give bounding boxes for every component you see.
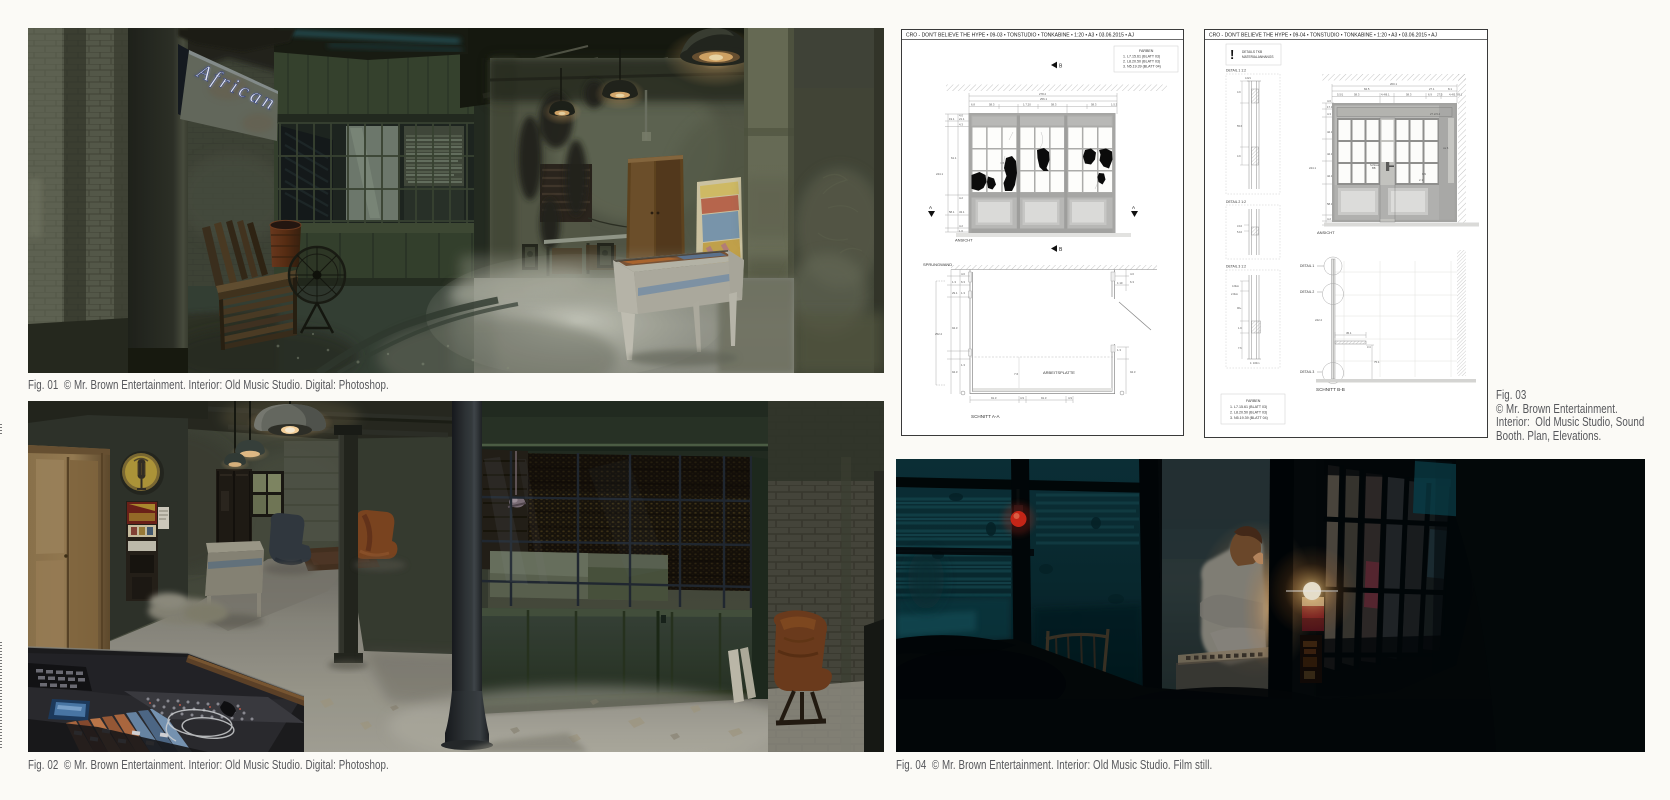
svg-text:ANSICHT: ANSICHT [955,238,973,243]
svg-text:CRO - DON'T BELIEVE THE HYPE •: CRO - DON'T BELIEVE THE HYPE • 09-03 • T… [906,33,1134,39]
svg-text:DETAIL 3: DETAIL 3 [1300,370,1314,374]
svg-text:4.9: 4.9 [1237,90,1241,94]
svg-text:DETAIL 2 1:2: DETAIL 2 1:2 [1226,200,1246,204]
svg-text:SCHNITT B-B: SCHNITT B-B [1316,387,1345,392]
svg-text:200.1: 200.1 [1390,82,1397,86]
svg-text:19.1: 19.1 [949,117,955,121]
svg-text:A: A [1132,205,1135,210]
svg-text:DETAIL 3 1:2: DETAIL 3 1:2 [1226,265,1246,269]
svg-text:6.9: 6.9 [1428,93,1432,97]
svg-text:3.10: 3.10 [1237,224,1243,228]
svg-text:4.0: 4.0 [961,272,965,276]
svg-text:4.3: 4.3 [959,123,963,127]
svg-text:!: ! [1230,47,1234,62]
svg-text:6.8: 6.8 [971,103,975,107]
svg-text:55.6: 55.6 [1237,124,1243,128]
svg-text:4.9/1: 4.9/1 [1245,76,1251,80]
svg-text:FARBEN: FARBEN [1139,49,1154,53]
svg-text:1.6: 1.6 [959,229,963,233]
svg-text:BB: BB [1372,166,1376,170]
svg-text:244.1: 244.1 [1309,166,1316,170]
svg-text:94.3: 94.3 [952,370,958,374]
svg-text:244.1: 244.1 [936,172,943,176]
svg-text:6.3: 6.3 [961,280,965,284]
svg-text:SPRUNGWAND: SPRUNGWAND [923,262,952,267]
svg-text:2.0km: 2.0km [1231,292,1238,296]
svg-text:FARBEN: FARBEN [1246,399,1261,403]
svg-text:94.3: 94.3 [952,326,958,330]
svg-text:45.1: 45.1 [1346,331,1352,335]
svg-text:252.2: 252.2 [935,332,942,336]
svg-text:27.5: 27.5 [1437,93,1443,97]
svg-text:278.2: 278.2 [1039,92,1046,96]
svg-text:1:5.3: 1:5.3 [1111,103,1118,107]
svg-text:1.3: 1.3 [1117,348,1121,352]
svg-text:4.4/5.7/8.1: 4.4/5.7/8.1 [1449,93,1463,97]
svg-text:4.9: 4.9 [1068,396,1072,400]
svg-text:4.2: 4.2 [959,196,963,200]
svg-text:2.1: 2.1 [1419,178,1423,182]
svg-text:1. L7.15.61 (BLATT 03): 1. L7.15.61 (BLATT 03) [1123,55,1160,59]
svg-text:256.1: 256.1 [1040,97,1047,101]
svg-text:75.1: 75.1 [1374,360,1380,364]
svg-text:58.1: 58.1 [949,210,955,214]
svg-text:1:10: 1:10 [1117,281,1123,285]
svg-text:61.1: 61.1 [951,156,957,160]
svg-text:7.6: 7.6 [1014,372,1019,376]
svg-text:27.2/3.4: 27.2/3.4 [1430,112,1441,116]
svg-text:1. L7.15.61 (BLATT 03): 1. L7.15.61 (BLATT 03) [1230,405,1267,409]
svg-text:1.3: 1.3 [961,363,965,367]
svg-text:A: A [929,205,932,210]
svg-text:4.2: 4.2 [1327,217,1331,221]
svg-text:1.3: 1.3 [961,291,965,295]
svg-text:90+: 90+ [1237,306,1242,310]
svg-text:58.3: 58.3 [1354,93,1360,97]
svg-text:4.0: 4.0 [1130,272,1134,276]
svg-text:ca 6: ca 6 [1443,146,1449,150]
svg-text:4.9km: 4.9km [1232,284,1239,288]
svg-text:DETAIL 2: DETAIL 2 [1300,290,1314,294]
svg-text:4.2: 4.2 [959,224,963,228]
svg-text:5.5/1: 5.5/1 [1337,93,1344,97]
svg-text:DETAIL 1: DETAIL 1 [1300,264,1314,268]
svg-text:3. N5.19.39 (BLATT 04): 3. N5.19.39 (BLATT 04) [1230,416,1268,420]
svg-text:1: 100m: 1: 100m [1250,361,1259,365]
svg-text:4.3: 4.3 [1327,112,1331,116]
svg-text:8.1: 8.1 [1448,87,1452,91]
svg-text:MATERIALANHANGS: MATERIALANHANGS [1242,55,1273,59]
svg-text:1:7.20: 1:7.20 [1023,103,1031,107]
svg-text:21.1: 21.1 [959,117,965,121]
svg-text:6.3: 6.3 [1130,280,1134,284]
svg-text:242.2: 242.2 [1315,318,1322,322]
svg-text:ARBEITSPLATTE: ARBEITSPLATTE [1043,370,1075,375]
svg-text:DETAIL 1 1:2: DETAIL 1 1:2 [1226,69,1246,73]
svg-text:3. N5.19.39 (BLATT 04): 3. N5.19.39 (BLATT 04) [1123,65,1161,69]
svg-text:2. L8.20.50 (BLATT 03): 2. L8.20.50 (BLATT 03) [1123,60,1160,64]
svg-text:4.0: 4.0 [1327,99,1331,103]
svg-text:58.3: 58.3 [1091,103,1097,107]
svg-text:4.9: 4.9 [1237,154,1241,158]
svg-text:6.9: 6.9 [1422,172,1426,176]
svg-text:5.10: 5.10 [1237,230,1243,234]
svg-text:91.3: 91.3 [991,396,997,400]
svg-text:27.1: 27.1 [1429,87,1435,91]
svg-text:58.3: 58.3 [1406,93,1412,97]
svg-text:58.3: 58.3 [1051,103,1057,107]
svg-text:91.3: 91.3 [1041,396,1047,400]
svg-text:4.9: 4.9 [1020,396,1024,400]
svg-text:2. L8.20.50 (BLATT 03): 2. L8.20.50 (BLATT 03) [1230,411,1267,415]
svg-text:43.1: 43.1 [959,210,965,214]
svg-text:1.3: 1.3 [952,280,956,284]
svg-text:58.3: 58.3 [989,103,995,107]
svg-text:SCHNITT A-A: SCHNITT A-A [971,414,1000,419]
svg-text:4.4/8.1: 4.4/8.1 [1381,93,1390,97]
svg-text:84.5: 84.5 [1364,87,1370,91]
svg-text:3.4: 3.4 [1367,345,1371,349]
svg-text:94.3: 94.3 [1130,370,1136,374]
svg-text:DETAILS TKB: DETAILS TKB [1242,50,1262,54]
svg-text:29.1: 29.1 [952,291,958,295]
svg-text:ANSICHT: ANSICHT [1317,230,1335,235]
svg-text:7.6: 7.6 [1238,346,1242,350]
svg-text:1.9: 1.9 [1238,326,1242,330]
svg-text:CRO - DON'T BELIEVE THE HYPE •: CRO - DON'T BELIEVE THE HYPE • 09-04 • T… [1209,33,1437,39]
